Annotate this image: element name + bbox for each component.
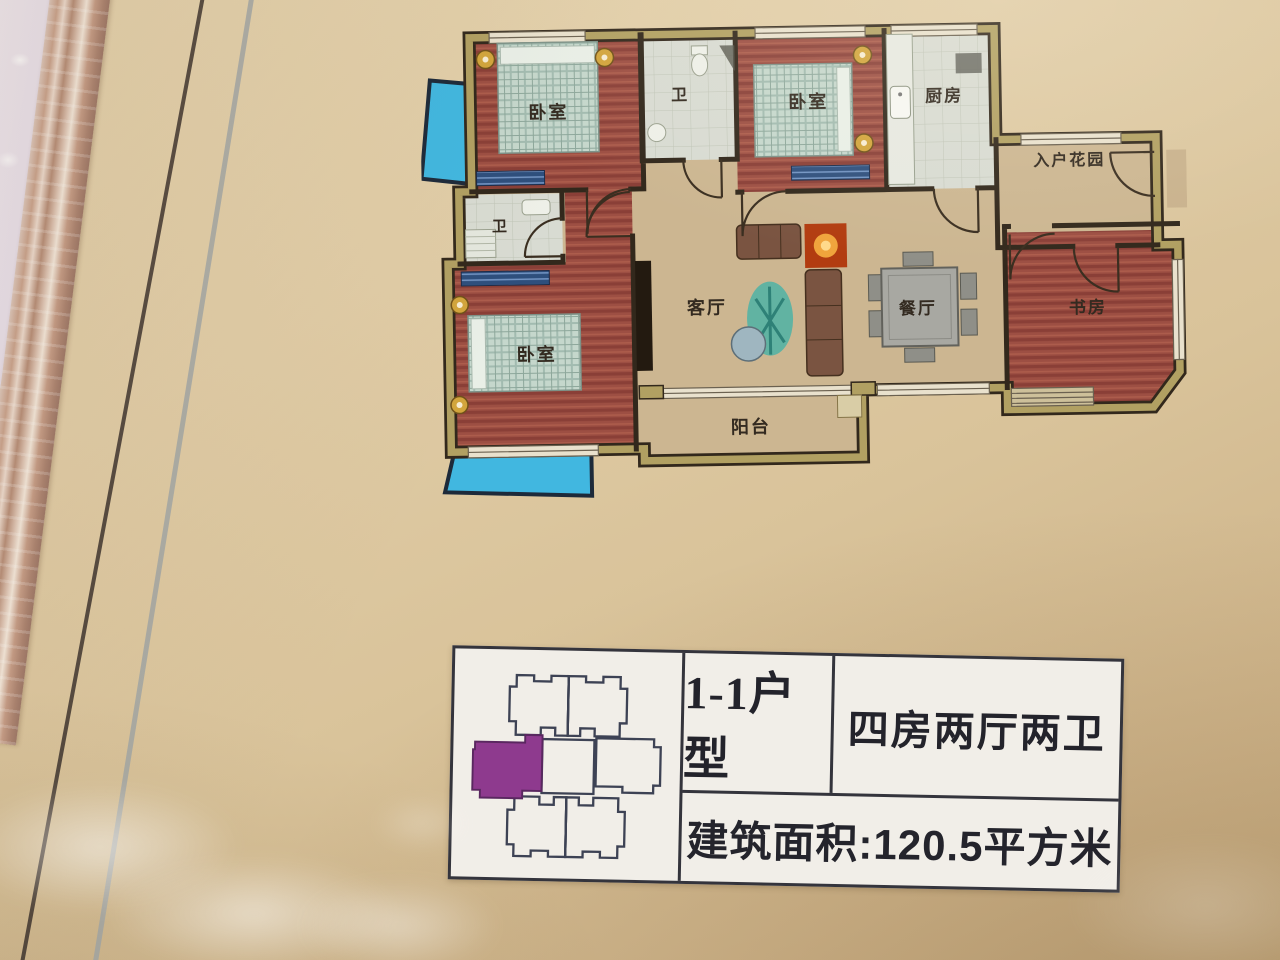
label-bedroom-top-right: 卧室 [788, 91, 828, 113]
photo-floorplan-board: 卧室 卫 卧室 厨房 入户花园 客厅 餐厅 书房 卫 卧室 阳台 [0, 0, 1280, 960]
balcony-post-right [851, 382, 875, 395]
label-bedroom-top-left: 卧室 [528, 101, 568, 123]
label-bathroom-top: 卫 [671, 87, 689, 104]
dresser [461, 270, 549, 286]
dresser [791, 165, 869, 180]
layout-label: 四房两厅两卫 [847, 695, 1106, 760]
floor-plan-svg: 卧室 卫 卧室 厨房 入户花园 客厅 餐厅 书房 卫 卧室 阳台 [419, 11, 1192, 504]
highlighted-unit [472, 734, 543, 799]
label-bathroom-middle: 卫 [492, 218, 509, 235]
info-table: 1-1户型 四房两厅两卫 建筑面积:120.5平方米 [448, 645, 1125, 892]
label-study: 书房 [1069, 297, 1107, 318]
dresser [476, 171, 544, 186]
floor-plan: 卧室 卫 卧室 厨房 入户花园 客厅 餐厅 书房 卫 卧室 阳台 [419, 11, 1192, 504]
coffee-table [731, 327, 766, 362]
balcony-appliance [837, 395, 861, 417]
tv-cabinet [635, 261, 653, 371]
floor-study [1005, 230, 1181, 410]
label-dining-room: 餐厅 [899, 298, 937, 319]
bay-window-left [420, 80, 470, 185]
unit-type-label: 1-1户型 [683, 655, 833, 790]
key-plan-svg [463, 664, 671, 866]
label-bedroom-bottom-left: 卧室 [516, 343, 556, 365]
balcony-post-left [639, 386, 663, 399]
label-kitchen: 厨房 [925, 85, 963, 106]
building-key-plan [451, 648, 686, 881]
area-cell: 建筑面积:120.5平方米 [681, 793, 1119, 890]
glare-reflection [104, 856, 404, 960]
wall-seam-gray [76, 0, 257, 960]
glare-reflection [300, 878, 500, 960]
label-entry-garden: 入户花园 [1033, 150, 1105, 170]
unit-type-cell: 1-1户型 [683, 653, 836, 793]
label-living-room: 客厅 [687, 296, 727, 318]
sofa-vertical [805, 269, 843, 376]
area-label: 建筑面积:120.5平方米 [686, 807, 1113, 877]
layout-cell: 四房两厅两卫 [833, 656, 1122, 799]
sofa-horizontal [736, 224, 801, 259]
label-balcony: 阳台 [731, 416, 771, 438]
